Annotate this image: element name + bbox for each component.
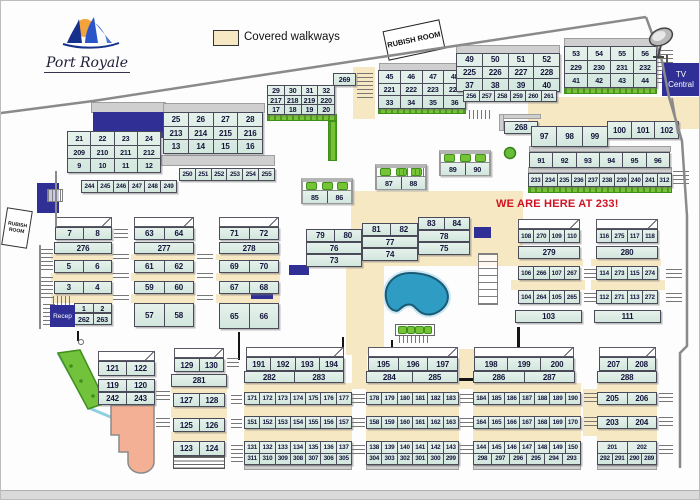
unit-row: 304303302301300299 <box>367 453 458 465</box>
hedge-strip <box>267 114 337 121</box>
block-roof <box>246 347 344 357</box>
staircase <box>47 189 63 202</box>
unit-31: 31 <box>301 86 318 95</box>
unit-53: 53 <box>565 47 587 60</box>
unit-223: 223 <box>422 84 444 96</box>
unit-211: 211 <box>114 146 137 159</box>
unit-row: 288 <box>598 372 656 382</box>
unit-310: 310 <box>259 454 274 465</box>
unit-52: 52 <box>533 54 559 66</box>
unit-209: 209 <box>68 146 90 159</box>
unit-row: 144145146147148149150 <box>474 442 580 453</box>
unit-row: 104264105265 <box>519 291 579 303</box>
stairs-hatch <box>227 358 239 369</box>
unit-123: 123 <box>174 442 199 455</box>
unit-163: 163 <box>443 417 458 428</box>
unit-row: 33343536 <box>379 95 465 108</box>
unit-45: 45 <box>379 71 400 83</box>
unit-297: 297 <box>491 454 509 465</box>
stairs-hatch <box>460 418 473 429</box>
unit-199: 199 <box>507 358 540 370</box>
unit-7: 7 <box>56 228 83 239</box>
plant-icon <box>475 154 486 162</box>
unit-row: 298297296295294293 <box>474 453 580 465</box>
unit-89: 89 <box>441 163 465 175</box>
unit-row: 262263 <box>75 314 111 324</box>
tree-icon <box>505 148 516 159</box>
unit-201: 201 <box>598 442 627 453</box>
unit-251: 251 <box>195 169 211 180</box>
unit-121: 121 <box>99 362 126 375</box>
unit-row: 116275117118 <box>597 230 657 242</box>
unit-49: 49 <box>457 54 482 66</box>
unit-262: 262 <box>75 314 93 324</box>
unit-block: 76 <box>306 242 362 254</box>
unit-row: 73 <box>307 255 361 266</box>
unit-26: 26 <box>188 113 213 126</box>
stairs-hatch <box>584 293 596 305</box>
unit-row: 100101102 <box>608 122 678 138</box>
unit-105: 105 <box>549 291 564 303</box>
unit-233: 233 <box>529 174 542 186</box>
plant-icon <box>306 182 317 190</box>
unit-300: 300 <box>427 454 442 465</box>
unit-269: 269 <box>334 74 355 85</box>
covered-walkway <box>366 405 459 416</box>
unit-225: 225 <box>457 67 482 79</box>
unit-304: 304 <box>367 454 381 465</box>
unit-64: 64 <box>164 228 194 239</box>
unit-row: 286287 <box>474 372 574 382</box>
unit-block: 279 <box>518 246 580 259</box>
unit-block: 262263 <box>74 313 112 325</box>
unit-row: 221222223224 <box>379 83 465 96</box>
unit-147: 147 <box>519 442 534 453</box>
unit-299: 299 <box>443 454 458 465</box>
unit-row: 74 <box>363 249 417 260</box>
unit-block: 201202292291290289 <box>597 441 657 465</box>
unit-block: 195196197 <box>368 357 458 371</box>
unit-246: 246 <box>113 181 129 192</box>
unit-145: 145 <box>488 442 503 453</box>
unit-119: 119 <box>99 380 126 391</box>
unit-195: 195 <box>369 358 398 370</box>
unit-152: 152 <box>259 417 274 428</box>
unit-row: 195196197 <box>369 358 457 370</box>
unit-row: 178179180181182183 <box>367 393 458 404</box>
unit-83: 83 <box>419 218 444 229</box>
unit-309: 309 <box>275 454 290 465</box>
block-roof <box>518 219 580 229</box>
unit-row: 127128 <box>174 394 224 406</box>
stairs-hatch <box>197 254 213 261</box>
unit-block: 207208 <box>599 357 656 371</box>
walkway-roof <box>597 465 657 470</box>
unit-264: 264 <box>533 291 548 303</box>
hedge-strip <box>328 121 337 161</box>
unit-70: 70 <box>249 261 279 272</box>
covered-walkway <box>511 280 585 290</box>
unit-82: 82 <box>390 224 418 235</box>
unit-row: 269 <box>334 74 355 85</box>
unit-row: 8384 <box>419 218 469 229</box>
unit-row: 6970 <box>220 261 278 272</box>
unit-block: 125126 <box>173 418 225 432</box>
unit-184: 184 <box>474 393 488 404</box>
unit-302: 302 <box>397 454 412 465</box>
unit-150: 150 <box>565 442 580 453</box>
unit-block: 184185186187188189190 <box>473 392 581 405</box>
sailboat-logo-icon <box>39 13 135 49</box>
unit-94: 94 <box>599 153 622 167</box>
unit-block: 6970 <box>219 260 279 273</box>
unit-193: 193 <box>295 358 319 370</box>
unit-164: 164 <box>474 417 488 428</box>
unit-270: 270 <box>533 230 548 242</box>
stairs-hatch <box>231 445 243 465</box>
unit-92: 92 <box>552 153 575 167</box>
unit-21: 21 <box>68 132 90 145</box>
unit-107: 107 <box>549 267 564 279</box>
covered-walkway <box>171 432 227 441</box>
unit-104: 104 <box>519 291 533 303</box>
covered-walkway <box>473 405 581 416</box>
covered-walkway <box>244 383 352 392</box>
unit-6: 6 <box>83 261 112 272</box>
unit-block: 2930313221721821922017181920 <box>267 85 335 115</box>
stairs-hatch <box>352 394 365 405</box>
unit-179: 179 <box>381 393 396 404</box>
unit-97: 97 <box>532 127 556 146</box>
stairs-hatch <box>352 418 365 429</box>
unit-row: 292291290289 <box>598 453 656 465</box>
stairs-hatch <box>113 295 129 303</box>
unit-200: 200 <box>540 358 573 370</box>
unit-274: 274 <box>642 267 657 279</box>
unit-row: 201202 <box>598 442 656 453</box>
unit-111: 111 <box>595 311 660 322</box>
unit-308: 308 <box>290 454 305 465</box>
unit-4: 4 <box>83 282 112 293</box>
small-marker-circle <box>79 340 84 345</box>
unit-block: 73 <box>306 254 362 267</box>
unit-block: 6162 <box>134 260 194 273</box>
unit-151: 151 <box>245 417 259 428</box>
unit-68: 68 <box>249 282 279 293</box>
unit-8: 8 <box>83 228 111 239</box>
unit-block: 233234235236237238239240241312 <box>528 173 672 187</box>
unit-block: 34 <box>54 281 112 294</box>
walkway-roof <box>161 155 275 166</box>
unit-128: 128 <box>199 394 225 406</box>
unit-block: 8384 <box>418 217 470 230</box>
walkway-roof <box>244 465 352 470</box>
unit-122: 122 <box>126 362 154 375</box>
unit-206: 206 <box>627 393 657 404</box>
unit-219: 219 <box>301 96 318 105</box>
unit-271: 271 <box>611 291 626 303</box>
unit-236: 236 <box>571 174 585 186</box>
unit-254: 254 <box>242 169 258 180</box>
road-segment <box>459 378 474 381</box>
unit-134: 134 <box>290 442 305 453</box>
unit-77: 77 <box>363 237 417 247</box>
unit-191: 191 <box>247 358 270 370</box>
unit-row: 256257258259260261 <box>464 91 556 101</box>
unit-235: 235 <box>557 174 571 186</box>
unit-block: 112271113272 <box>596 290 658 304</box>
stairs-hatch <box>197 295 213 303</box>
unit-block: 277 <box>134 242 194 254</box>
unit-87: 87 <box>377 177 401 189</box>
unit-block: 121122 <box>98 361 155 376</box>
unit-row: 276 <box>55 243 111 253</box>
unit-block: 151152153154155156157 <box>244 416 352 429</box>
covered-walkway <box>346 259 384 355</box>
unit-row: 225226227228 <box>457 66 559 79</box>
unit-203: 203 <box>598 417 627 428</box>
unit-142: 142 <box>427 442 442 453</box>
unit-281: 281 <box>172 375 226 386</box>
unit-187: 187 <box>519 393 534 404</box>
unit-row: 75 <box>419 243 469 254</box>
covered-walkway <box>366 429 459 441</box>
covered-walkway <box>459 349 474 389</box>
unit-289: 289 <box>641 454 656 465</box>
unit-block: 198199200 <box>474 357 574 371</box>
unit-161: 161 <box>412 417 427 428</box>
unit-115: 115 <box>627 267 642 279</box>
unit-72: 72 <box>249 228 279 239</box>
unit-153: 153 <box>275 417 290 428</box>
unit-100: 100 <box>608 122 631 138</box>
unit-block: 286287 <box>473 371 575 383</box>
port-royale-logo: Port Royale <box>37 13 137 73</box>
unit-block: 1311321331341351361373113103093083073063… <box>244 441 352 465</box>
unit-127: 127 <box>174 394 199 406</box>
unit-204: 204 <box>627 417 657 428</box>
hedge-strip <box>564 87 657 94</box>
unit-block: 288 <box>597 371 657 383</box>
unit-69: 69 <box>220 261 249 272</box>
unit-210: 210 <box>90 146 113 159</box>
unit-296: 296 <box>509 454 527 465</box>
unit-162: 162 <box>427 417 442 428</box>
unit-row: 21222324 <box>68 132 160 145</box>
unit-row: 244245246247248249 <box>82 181 176 192</box>
unit-block: 111 <box>594 310 661 323</box>
unit-block: 103 <box>515 310 582 323</box>
unit-63: 63 <box>135 228 164 239</box>
unit-159: 159 <box>381 417 396 428</box>
plant-icon <box>415 326 424 334</box>
unit-2: 2 <box>93 304 112 312</box>
unit-row: 279 <box>519 247 579 258</box>
unit-242: 242 <box>99 393 126 404</box>
stairs-hatch <box>113 273 129 281</box>
stairs-hatch <box>41 277 53 299</box>
unit-106: 106 <box>519 267 533 279</box>
unit-176: 176 <box>320 393 335 404</box>
road-segment <box>77 331 79 341</box>
unit-24: 24 <box>137 132 160 145</box>
unit-row: 158159160161162163 <box>367 417 458 428</box>
unit-175: 175 <box>305 393 320 404</box>
unit-row: 8990 <box>441 163 489 175</box>
unit-95: 95 <box>622 153 645 167</box>
plant-icon <box>460 154 471 162</box>
unit-row: 111 <box>595 311 660 322</box>
unit-row: 103 <box>516 311 581 322</box>
unit-row: 6768 <box>220 282 278 293</box>
unit-row: 7172 <box>220 228 278 239</box>
unit-row: 53545556 <box>565 47 656 60</box>
stairs-hatch <box>659 417 673 428</box>
unit-block: 256257258259260261 <box>463 90 557 102</box>
stairs-hatch <box>41 249 53 271</box>
stairs-hatch <box>53 296 73 305</box>
unit-row: 191192193194 <box>247 358 343 370</box>
unit-276: 276 <box>55 243 111 253</box>
block-roof <box>134 217 194 227</box>
unit-row: 207208 <box>600 358 655 370</box>
unit-231: 231 <box>610 61 633 74</box>
unit-block: 205206 <box>597 392 657 405</box>
unit-block: 284285 <box>366 371 458 383</box>
unit-33: 33 <box>379 96 400 108</box>
unit-226: 226 <box>482 67 508 79</box>
unit-block: 144145146147148149150298297296295294293 <box>473 441 581 465</box>
unit-block: 979899 <box>531 126 608 147</box>
planter-row <box>441 154 489 163</box>
reception-building: Recep <box>50 305 75 327</box>
covered-walkway <box>244 429 352 441</box>
plant-icon <box>407 326 416 334</box>
unit-132: 132 <box>259 442 274 453</box>
unit-row: 123124 <box>174 442 224 455</box>
unit-279: 279 <box>519 247 579 258</box>
unit-148: 148 <box>534 442 549 453</box>
unit-block: 6768 <box>219 281 279 294</box>
unit-90: 90 <box>465 163 490 175</box>
unit-row: 229230231232 <box>565 60 656 74</box>
unit-row: 112271113272 <box>597 291 657 303</box>
unit-50: 50 <box>482 54 508 66</box>
unit-78: 78 <box>419 231 469 241</box>
unit-16: 16 <box>237 140 262 153</box>
unit-12: 12 <box>137 159 160 172</box>
unit-61: 61 <box>135 261 164 272</box>
unit-block: 108270109110 <box>518 229 580 243</box>
unit-98: 98 <box>556 127 581 146</box>
unit-row: 41424344 <box>565 73 656 87</box>
covered-walkway <box>244 405 352 416</box>
unit-228: 228 <box>533 67 559 79</box>
unit-84: 84 <box>444 218 470 229</box>
unit-65: 65 <box>220 304 249 328</box>
unit-block: 78 <box>418 230 470 242</box>
unit-237: 237 <box>585 174 599 186</box>
unit-285: 285 <box>412 372 458 382</box>
tv-central-building: TV Central <box>662 63 700 96</box>
unit-248: 248 <box>144 181 160 192</box>
unit-73: 73 <box>307 255 361 266</box>
unit-167: 167 <box>519 417 534 428</box>
unit-216: 216 <box>237 127 262 140</box>
unit-19: 19 <box>301 105 318 114</box>
unit-block: 212223242092102112129101112 <box>67 131 161 173</box>
unit-row: 151152153154155156157 <box>245 417 351 428</box>
unit-157: 157 <box>336 417 351 428</box>
unit-67: 67 <box>220 282 249 293</box>
plant-icon <box>398 326 407 334</box>
unit-20: 20 <box>317 105 334 114</box>
unit-120: 120 <box>126 380 154 391</box>
unit-row: 198199200 <box>475 358 573 370</box>
unit-row: 979899 <box>532 127 607 146</box>
covered-walkway <box>513 259 583 266</box>
unit-244: 244 <box>82 181 97 192</box>
unit-186: 186 <box>504 393 519 404</box>
unit-113: 113 <box>627 291 642 303</box>
unit-block: 269 <box>333 73 356 86</box>
unit-189: 189 <box>549 393 564 404</box>
unit-block: 280 <box>596 246 658 259</box>
unit-row: 6162 <box>135 261 193 272</box>
unit-294: 294 <box>544 454 562 465</box>
resort-site-map: 2930313221721821922017181920269252627282… <box>0 0 700 500</box>
unit-305: 305 <box>336 454 351 465</box>
planter-row <box>303 182 351 191</box>
unit-259: 259 <box>510 91 526 101</box>
unit-101: 101 <box>631 122 655 138</box>
unit-243: 243 <box>126 393 154 404</box>
unit-257: 257 <box>479 91 495 101</box>
rubbish-room-top: RUBISH ROOM <box>383 19 446 60</box>
unit-170: 170 <box>565 417 580 428</box>
unit-block: 282283 <box>244 371 344 383</box>
unit-267: 267 <box>564 267 579 279</box>
unit-75: 75 <box>419 243 469 254</box>
unit-220: 220 <box>317 96 334 105</box>
garden-building: 8990 <box>439 150 491 176</box>
unit-81: 81 <box>363 224 390 235</box>
unit-block: 75 <box>418 242 470 255</box>
unit-42: 42 <box>587 74 610 87</box>
unit-row: 138139140141142143 <box>367 442 458 453</box>
walkway-roof <box>499 114 541 119</box>
plant-icon <box>337 182 348 190</box>
pool-rim <box>386 273 448 314</box>
stairs-hatch <box>673 171 689 185</box>
unit-row: 56 <box>55 261 111 272</box>
covered-walkway <box>591 280 665 290</box>
unit-row: 25262728 <box>164 113 262 126</box>
unit-57: 57 <box>135 304 164 326</box>
unit-block: 104264105265 <box>518 290 580 304</box>
unit-59: 59 <box>135 282 164 293</box>
unit-154: 154 <box>290 417 305 428</box>
unit-row: 233234235236237238239240241312 <box>529 174 671 186</box>
unit-row: 284285 <box>367 372 457 382</box>
unit-109: 109 <box>549 230 564 242</box>
unit-block: 114273115274 <box>596 266 658 280</box>
unit-306: 306 <box>320 454 335 465</box>
utility-building <box>474 227 491 238</box>
unit-row: 281 <box>172 375 226 386</box>
unit-27: 27 <box>213 113 238 126</box>
unit-108: 108 <box>519 230 533 242</box>
